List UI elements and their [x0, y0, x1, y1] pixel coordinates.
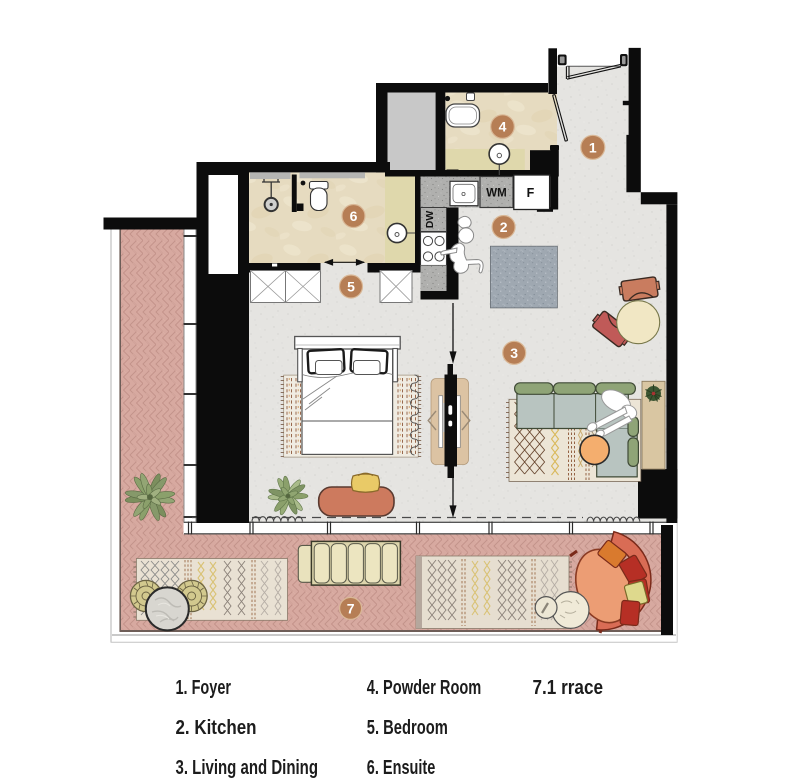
svg-text:1: 1: [589, 139, 597, 155]
svg-text:7.1 rrace: 7.1 rrace: [533, 677, 604, 699]
svg-text:7: 7: [347, 600, 355, 616]
svg-text:3. Living and Dining: 3. Living and Dining: [176, 757, 319, 779]
svg-text:2. Kitchen: 2. Kitchen: [176, 717, 257, 739]
svg-text:4: 4: [499, 119, 507, 135]
svg-text:6: 6: [350, 208, 358, 224]
svg-text:4. Powder Room: 4. Powder Room: [367, 677, 482, 699]
svg-text:5. Bedroom: 5. Bedroom: [367, 717, 448, 739]
svg-text:2: 2: [500, 219, 508, 235]
svg-text:6. Ensuite: 6. Ensuite: [367, 757, 436, 779]
svg-text:1. Foyer: 1. Foyer: [176, 677, 232, 699]
svg-text:3: 3: [510, 345, 518, 361]
svg-text:5: 5: [347, 279, 355, 295]
svg-text:DW: DW: [424, 211, 436, 229]
svg-text:F: F: [527, 186, 535, 200]
svg-text:WM: WM: [486, 188, 506, 200]
